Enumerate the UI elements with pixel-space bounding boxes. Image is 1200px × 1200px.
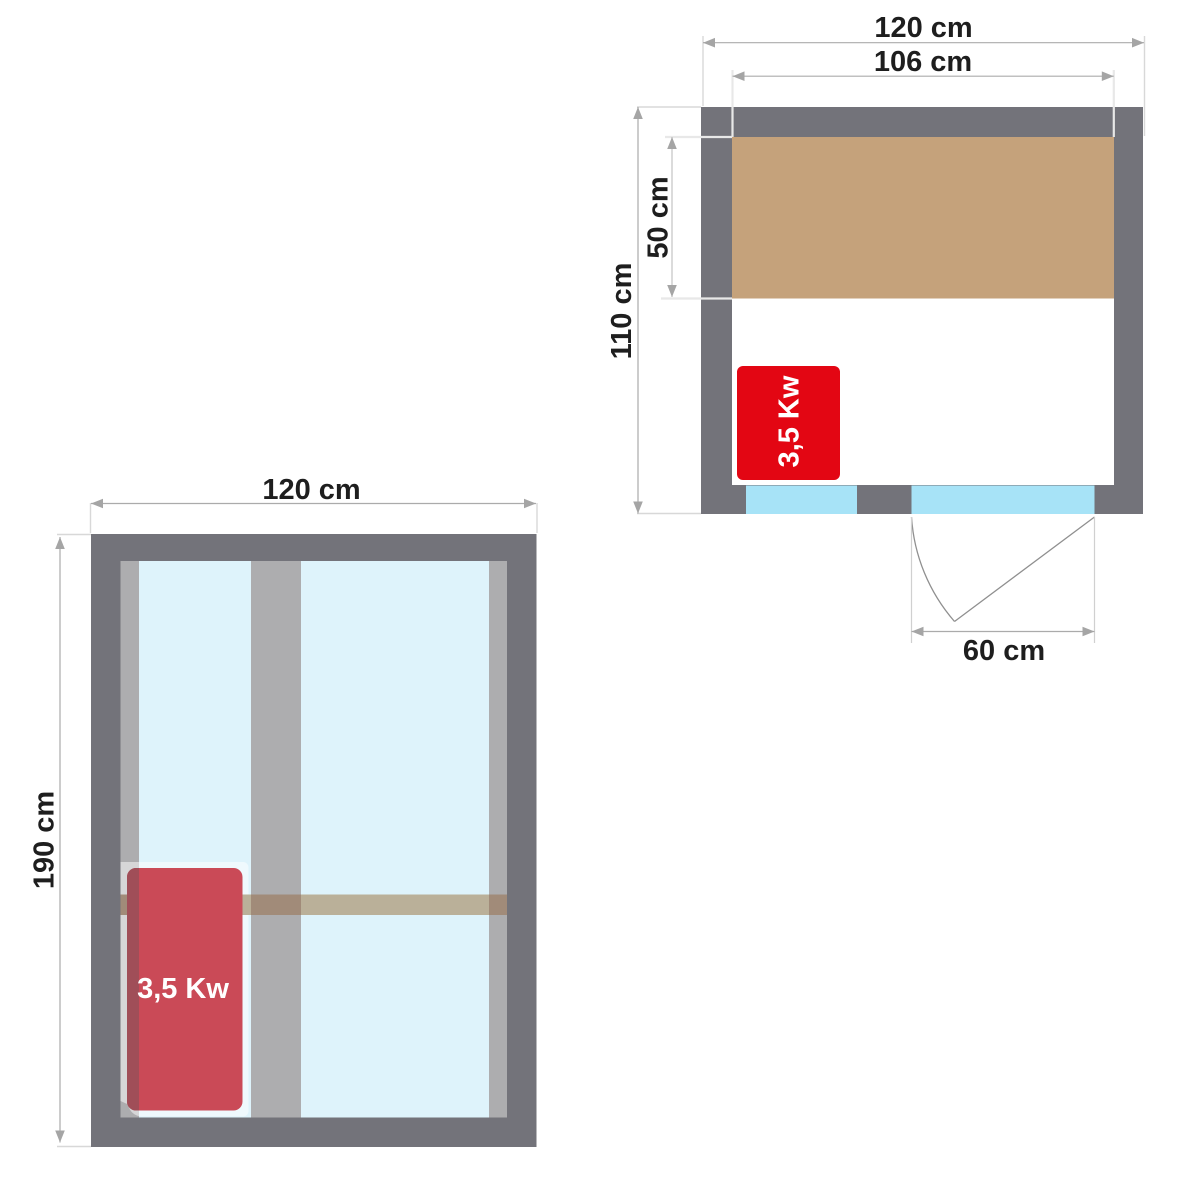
svg-text:3,5 Kw: 3,5 Kw [137, 973, 229, 1005]
svg-text:106 cm: 106 cm [874, 46, 972, 78]
svg-text:60 cm: 60 cm [963, 635, 1045, 667]
svg-text:120 cm: 120 cm [262, 474, 360, 506]
svg-text:190 cm: 190 cm [29, 791, 61, 889]
svg-text:50 cm: 50 cm [643, 176, 675, 258]
svg-text:120 cm: 120 cm [874, 12, 972, 44]
svg-text:3,5 Kw: 3,5 Kw [774, 375, 806, 467]
svg-text:110 cm: 110 cm [606, 263, 638, 360]
